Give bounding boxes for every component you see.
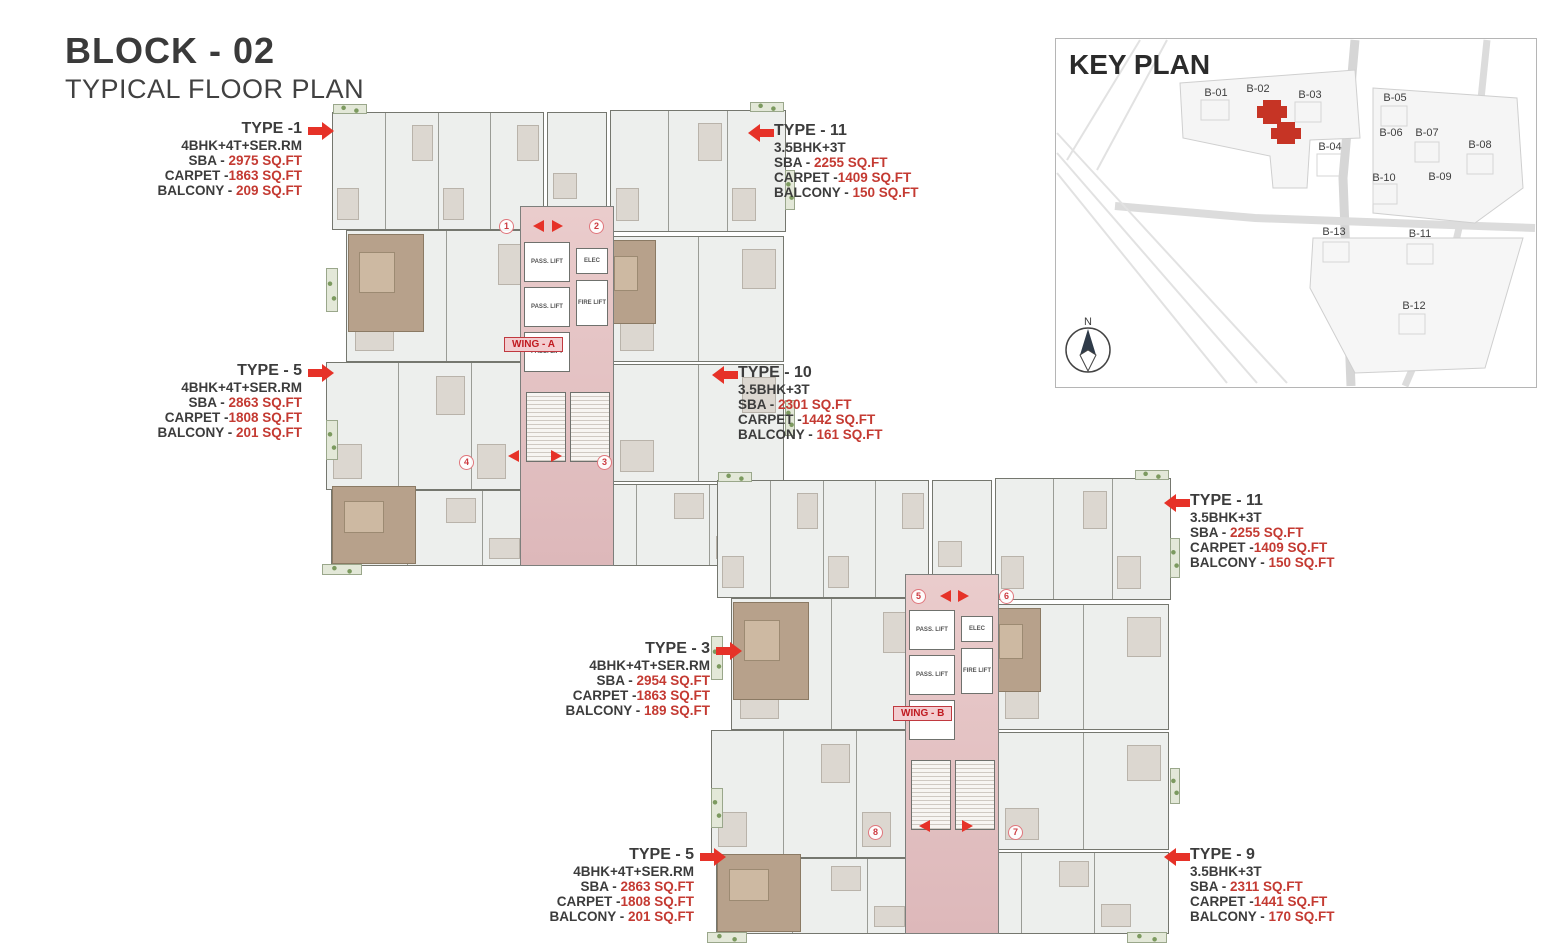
unit-number-badge: 7	[1008, 825, 1023, 840]
unit-type-card: TYPE - 11 3.5BHK+3T SBA - 2255 SQ.FT CAR…	[1190, 492, 1360, 570]
unit-type-config: 4BHK+4T+SER.RM	[130, 138, 302, 153]
unit-type-card: TYPE -1 4BHK+4T+SER.RM SBA - 2975 SQ.FT …	[130, 120, 302, 198]
metric-value: 150 SQ.FT	[853, 185, 919, 200]
room	[771, 481, 824, 597]
metric-label: CARPET -	[738, 412, 802, 427]
master-bedroom	[733, 602, 809, 700]
metric-label: BALCONY -	[1190, 555, 1269, 570]
room	[1084, 733, 1169, 849]
metric-label: CARPET -	[573, 688, 637, 703]
metric-label: SBA -	[580, 879, 620, 894]
metric-value: 161 SQ.FT	[817, 427, 883, 442]
balcony-row: BALCONY - 150 SQ.FT	[1190, 555, 1360, 570]
entrance-arrow-icon	[958, 590, 969, 602]
unit-type-card: TYPE - 5 4BHK+4T+SER.RM SBA - 2863 SQ.FT…	[524, 846, 694, 924]
room-block	[995, 478, 1171, 600]
unit-type-name: TYPE - 11	[774, 122, 944, 140]
balcony	[322, 564, 362, 575]
entrance-arrow-icon	[919, 820, 930, 832]
metric-label: CARPET -	[774, 170, 838, 185]
balcony	[1135, 470, 1169, 480]
unit-number-badge: 1	[499, 219, 514, 234]
room	[439, 113, 492, 229]
staircase	[955, 760, 995, 830]
room	[1054, 479, 1112, 599]
unit-type-config: 3.5BHK+3T	[1190, 510, 1360, 525]
entrance-arrow-icon	[551, 450, 562, 462]
metric-value: 150 SQ.FT	[1269, 555, 1335, 570]
metric-label: CARPET -	[1190, 540, 1254, 555]
metric-label: CARPET -	[165, 410, 229, 425]
unit-type-card: TYPE - 9 3.5BHK+3T SBA - 2311 SQ.FT CARP…	[1190, 846, 1360, 924]
balcony	[707, 932, 747, 943]
metric-label: BALCONY -	[774, 185, 853, 200]
metric-value: 2975 SQ.FT	[228, 153, 302, 168]
room	[637, 485, 711, 565]
carpet-row: CARPET -1808 SQ.FT	[130, 410, 302, 425]
entrance-arrow-icon	[940, 590, 951, 602]
sba-row: SBA - 2301 SQ.FT	[738, 397, 908, 412]
entrance-arrow-icon	[962, 820, 973, 832]
key-plan-block-label: B-03	[1298, 89, 1321, 101]
room	[1113, 479, 1170, 599]
unit-type-name: TYPE - 5	[524, 846, 694, 864]
metric-value: 2954 SQ.FT	[636, 673, 710, 688]
metric-value: 2301 SQ.FT	[778, 397, 852, 412]
carpet-row: CARPET -1409 SQ.FT	[774, 170, 944, 185]
master-bedroom	[717, 854, 801, 932]
key-plan-block-label: B-07	[1415, 127, 1438, 139]
wing-a-label: WING - A	[504, 337, 563, 352]
balcony	[333, 104, 367, 114]
key-plan-block-label: B-05	[1383, 92, 1406, 104]
metric-value: 2863 SQ.FT	[620, 879, 694, 894]
pointer-arrow-icon	[1164, 848, 1190, 866]
balcony-row: BALCONY - 189 SQ.FT	[540, 703, 710, 718]
balcony	[718, 472, 752, 482]
metric-label: BALCONY -	[157, 425, 236, 440]
metric-value: 170 SQ.FT	[1269, 909, 1335, 924]
unit-number-badge: 5	[911, 589, 926, 604]
room	[333, 113, 386, 229]
balcony	[326, 268, 338, 312]
passenger-lift: PASS. LIFT	[524, 242, 570, 282]
key-plan-block-label: B-12	[1402, 300, 1425, 312]
room	[386, 113, 439, 229]
pointer-arrow-icon	[308, 364, 334, 382]
metric-value: 2255 SQ.FT	[1230, 525, 1304, 540]
balcony	[326, 420, 338, 460]
metric-label: SBA -	[1190, 879, 1230, 894]
balcony-row: BALCONY - 170 SQ.FT	[1190, 909, 1360, 924]
carpet-row: CARPET -1863 SQ.FT	[130, 168, 302, 183]
balcony	[750, 102, 784, 112]
unit-number-badge: 6	[999, 589, 1014, 604]
room-block	[717, 480, 929, 598]
metric-label: SBA -	[188, 395, 228, 410]
unit-type-card: TYPE - 11 3.5BHK+3T SBA - 2255 SQ.FT CAR…	[774, 122, 944, 200]
room	[613, 365, 699, 481]
unit-number-badge: 4	[459, 455, 474, 470]
balcony	[1127, 932, 1167, 943]
wing-b-label: WING - B	[893, 706, 952, 721]
room	[1084, 605, 1169, 729]
metric-value: 2863 SQ.FT	[228, 395, 302, 410]
pointer-arrow-icon	[308, 122, 334, 140]
pointer-arrow-icon	[748, 124, 774, 142]
unit-type-config: 3.5BHK+3T	[1190, 864, 1360, 879]
metric-value: 1863 SQ.FT	[228, 168, 302, 183]
pointer-arrow-icon	[716, 642, 742, 660]
metric-value: 1441 SQ.FT	[1254, 894, 1328, 909]
unit-type-name: TYPE - 9	[1190, 846, 1360, 864]
unit-type-config: 3.5BHK+3T	[738, 382, 908, 397]
sba-row: SBA - 2975 SQ.FT	[130, 153, 302, 168]
metric-value: 2255 SQ.FT	[814, 155, 888, 170]
balcony-row: BALCONY - 161 SQ.FT	[738, 427, 908, 442]
metric-value: 201 SQ.FT	[628, 909, 694, 924]
key-plan-block-label: B-04	[1318, 141, 1341, 153]
metric-value: 209 SQ.FT	[236, 183, 302, 198]
room	[611, 111, 669, 231]
unit-type-card: TYPE - 3 4BHK+4T+SER.RM SBA - 2954 SQ.FT…	[540, 640, 710, 718]
metric-label: SBA -	[738, 397, 778, 412]
key-plan-block-label: B-13	[1322, 226, 1345, 238]
sba-row: SBA - 2863 SQ.FT	[130, 395, 302, 410]
metric-value: 1442 SQ.FT	[802, 412, 876, 427]
room	[1095, 853, 1168, 933]
entrance-arrow-icon	[533, 220, 544, 232]
fire-lift: FIRE LIFT	[961, 648, 993, 694]
unit-type-card: TYPE - 5 4BHK+4T+SER.RM SBA - 2863 SQ.FT…	[130, 362, 302, 440]
unit-type-name: TYPE -1	[130, 120, 302, 138]
metric-label: SBA -	[1190, 525, 1230, 540]
carpet-row: CARPET -1808 SQ.FT	[524, 894, 694, 909]
metric-label: SBA -	[596, 673, 636, 688]
metric-value: 2311 SQ.FT	[1230, 879, 1303, 894]
pointer-arrow-icon	[700, 848, 726, 866]
entrance-arrow-icon	[552, 220, 563, 232]
electrical-room: ELEC	[576, 248, 608, 274]
key-plan-block-label: B-01	[1204, 87, 1227, 99]
room	[408, 491, 484, 565]
room	[1022, 853, 1096, 933]
balcony-row: BALCONY - 209 SQ.FT	[130, 183, 302, 198]
room	[933, 481, 991, 575]
metric-value: 1409 SQ.FT	[1254, 540, 1328, 555]
metric-value: 1808 SQ.FT	[228, 410, 302, 425]
room-block	[326, 362, 544, 490]
unit-type-card: TYPE - 10 3.5BHK+3T SBA - 2301 SQ.FT CAR…	[738, 364, 908, 442]
key-plan-block-label: B-06	[1379, 127, 1402, 139]
electrical-room: ELEC	[961, 616, 993, 642]
metric-label: BALCONY -	[565, 703, 644, 718]
page-subtitle: TYPICAL FLOOR PLAN	[65, 74, 364, 105]
key-plan-block-label: B-08	[1468, 139, 1491, 151]
room	[548, 113, 606, 207]
unit-type-name: TYPE - 11	[1190, 492, 1360, 510]
unit-type-name: TYPE - 5	[130, 362, 302, 380]
key-plan-block-label: B-11	[1409, 228, 1431, 240]
room	[718, 481, 771, 597]
unit-number-badge: 3	[597, 455, 612, 470]
sba-row: SBA - 2954 SQ.FT	[540, 673, 710, 688]
passenger-lift: PASS. LIFT	[909, 655, 955, 695]
unit-type-config: 3.5BHK+3T	[774, 140, 944, 155]
metric-label: BALCONY -	[549, 909, 628, 924]
unit-type-name: TYPE - 3	[540, 640, 710, 658]
floor-plan-page: { "page": { "title": "BLOCK - 02", "subt…	[0, 0, 1555, 947]
unit-type-config: 4BHK+4T+SER.RM	[130, 380, 302, 395]
balcony	[1170, 538, 1180, 578]
metric-label: BALCONY -	[738, 427, 817, 442]
metric-label: CARPET -	[165, 168, 229, 183]
key-plan-title: KEY PLAN	[1069, 49, 1210, 80]
compass-north-label: N	[1084, 316, 1092, 328]
unit-type-config: 4BHK+4T+SER.RM	[524, 864, 694, 879]
carpet-row: CARPET -1409 SQ.FT	[1190, 540, 1360, 555]
unit-type-name: TYPE - 10	[738, 364, 908, 382]
room-block	[332, 112, 544, 230]
metric-label: CARPET -	[1190, 894, 1254, 909]
metric-label: BALCONY -	[157, 183, 236, 198]
master-bedroom	[348, 234, 424, 332]
metric-value: 189 SQ.FT	[644, 703, 710, 718]
metric-label: BALCONY -	[1190, 909, 1269, 924]
master-bedroom	[332, 486, 416, 564]
room	[996, 479, 1054, 599]
metric-value: 1808 SQ.FT	[620, 894, 694, 909]
room-block	[711, 730, 929, 858]
unit-type-config: 4BHK+4T+SER.RM	[540, 658, 710, 673]
pointer-arrow-icon	[1164, 494, 1190, 512]
pointer-arrow-icon	[712, 366, 738, 384]
room	[699, 237, 784, 361]
passenger-lift: PASS. LIFT	[524, 287, 570, 327]
carpet-row: CARPET -1863 SQ.FT	[540, 688, 710, 703]
unit-number-badge: 8	[868, 825, 883, 840]
staircase	[911, 760, 951, 830]
carpet-row: CARPET -1441 SQ.FT	[1190, 894, 1360, 909]
balcony	[711, 788, 723, 828]
carpet-row: CARPET -1442 SQ.FT	[738, 412, 908, 427]
room	[669, 111, 727, 231]
balcony-row: BALCONY - 201 SQ.FT	[524, 909, 694, 924]
key-plan-block-label: B-10	[1372, 172, 1395, 184]
room-block	[932, 480, 992, 576]
entrance-arrow-icon	[508, 450, 519, 462]
sba-row: SBA - 2863 SQ.FT	[524, 879, 694, 894]
balcony-row: BALCONY - 150 SQ.FT	[774, 185, 944, 200]
room-block	[547, 112, 607, 208]
balcony	[1170, 768, 1180, 804]
page-title: BLOCK - 02	[65, 30, 275, 72]
key-plan-block-label: B-02	[1246, 83, 1269, 95]
passenger-lift: PASS. LIFT	[909, 610, 955, 650]
metric-value: 1409 SQ.FT	[838, 170, 912, 185]
sba-row: SBA - 2311 SQ.FT	[1190, 879, 1360, 894]
metric-label: SBA -	[188, 153, 228, 168]
metric-value: 201 SQ.FT	[236, 425, 302, 440]
sba-row: SBA - 2255 SQ.FT	[774, 155, 944, 170]
room	[824, 481, 877, 597]
metric-value: 1863 SQ.FT	[636, 688, 710, 703]
unit-number-badge: 2	[589, 219, 604, 234]
fire-lift: FIRE LIFT	[576, 280, 608, 326]
room	[793, 859, 869, 933]
metric-label: CARPET -	[557, 894, 621, 909]
metric-label: SBA -	[774, 155, 814, 170]
balcony-row: BALCONY - 201 SQ.FT	[130, 425, 302, 440]
staircase	[570, 392, 610, 462]
sba-row: SBA - 2255 SQ.FT	[1190, 525, 1360, 540]
key-plan: B-01 B-02 B-03 B-04 B-05 B-06 B-07 B-08 …	[1055, 38, 1537, 388]
room	[784, 731, 856, 857]
key-plan-block-label: B-09	[1428, 171, 1451, 183]
room	[399, 363, 471, 489]
